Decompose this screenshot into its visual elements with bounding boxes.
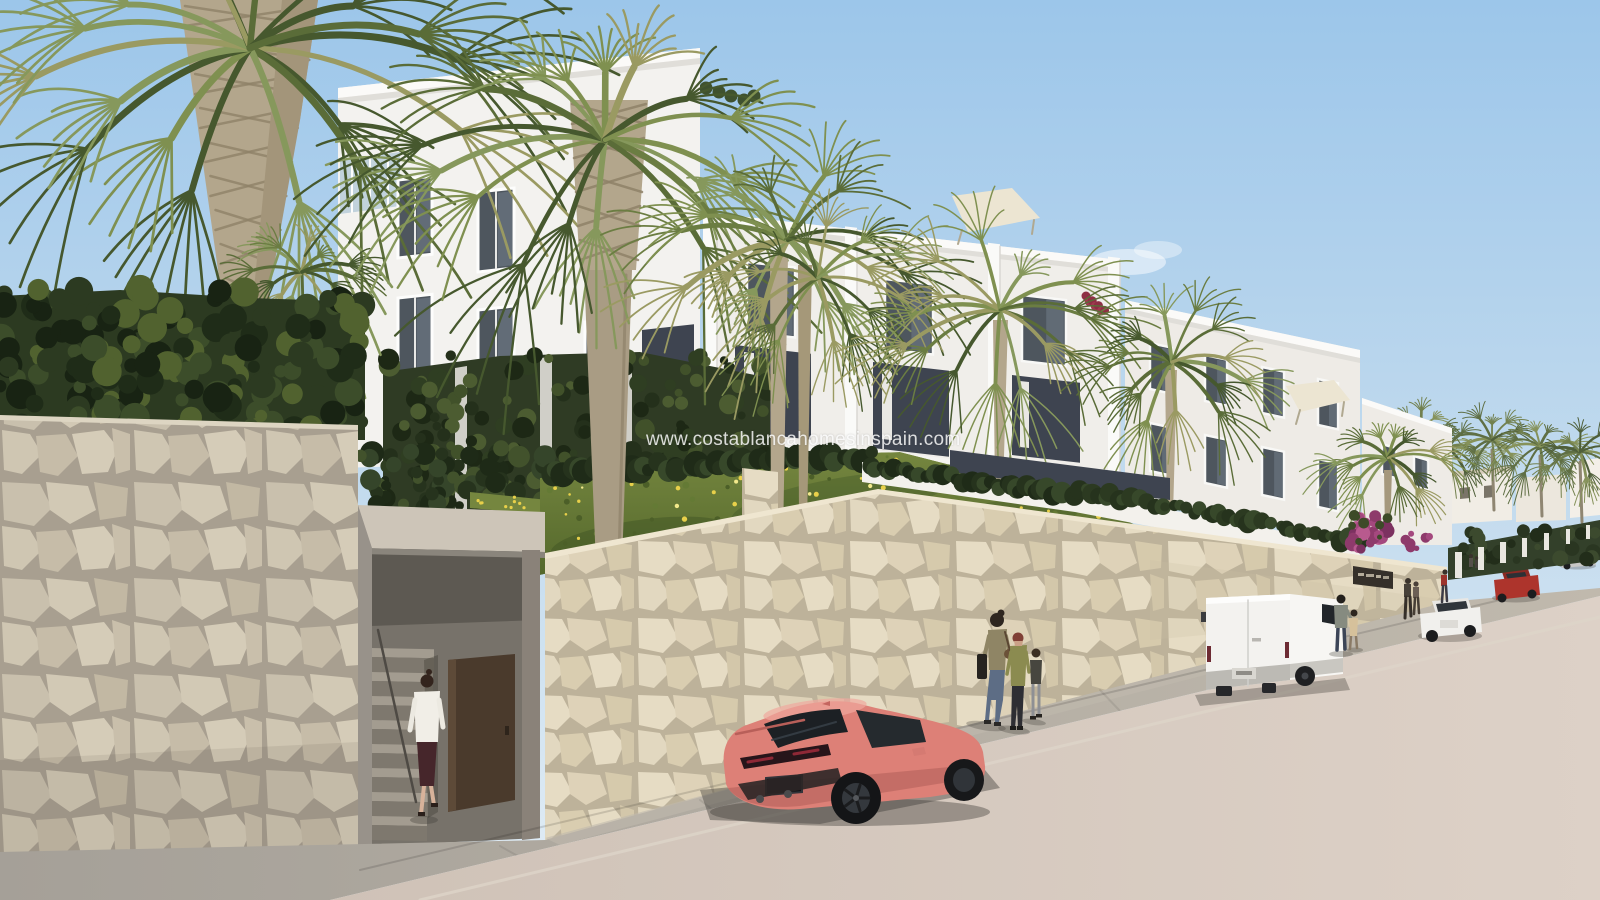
stone-wall-left [0, 415, 358, 878]
architectural-render-scene: www.costablancahomesinspain.com [0, 0, 1600, 900]
white-van [1195, 594, 1350, 706]
entrance [358, 505, 545, 852]
watermark: www.costablancahomesinspain.com [646, 429, 961, 451]
